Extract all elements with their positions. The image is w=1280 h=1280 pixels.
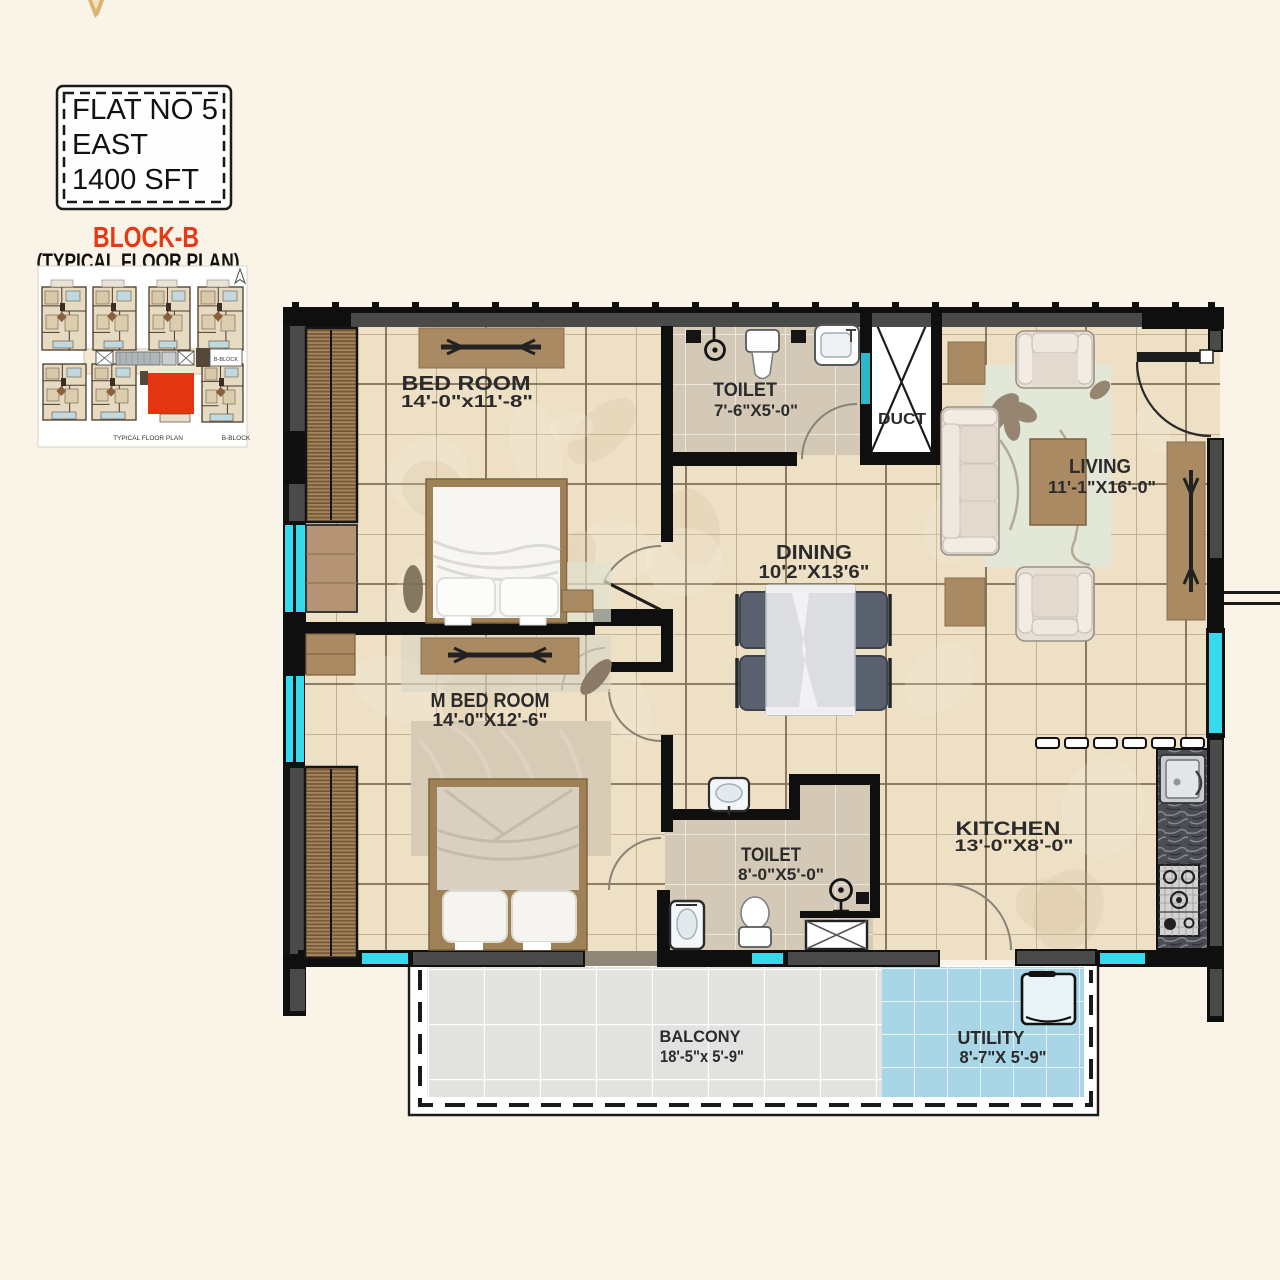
- svg-text:8'-7"X 5'-9": 8'-7"X 5'-9": [960, 1047, 1047, 1067]
- svg-text:11'-1"X16'-0": 11'-1"X16'-0": [1048, 477, 1156, 497]
- svg-text:1400 SFT: 1400 SFT: [72, 164, 199, 196]
- svg-text:10'2"X13'6": 10'2"X13'6": [759, 562, 870, 582]
- svg-text:BALCONY: BALCONY: [660, 1027, 742, 1046]
- svg-text:LIVING: LIVING: [1069, 456, 1131, 478]
- svg-text:14'-0"X12'-6": 14'-0"X12'-6": [433, 710, 548, 730]
- svg-text:EAST: EAST: [72, 129, 148, 161]
- svg-text:7'-6"X5'-0": 7'-6"X5'-0": [714, 402, 798, 420]
- svg-text:DINING: DINING: [776, 541, 852, 564]
- svg-text:TOILET: TOILET: [741, 844, 801, 866]
- svg-text:UTILITY: UTILITY: [958, 1028, 1025, 1048]
- svg-text:DUCT: DUCT: [878, 411, 926, 428]
- svg-text:TYPICAL FLOOR PLAN: TYPICAL FLOOR PLAN: [113, 435, 183, 442]
- svg-text:TOILET: TOILET: [713, 379, 777, 401]
- svg-text:M BED ROOM: M BED ROOM: [431, 689, 550, 712]
- svg-text:14'-0"x11'-8": 14'-0"x11'-8": [401, 391, 533, 411]
- svg-text:B-BLOCK: B-BLOCK: [214, 357, 238, 363]
- svg-text:FLAT NO 5: FLAT NO 5: [72, 94, 218, 126]
- svg-text:13'-0"X8'-0": 13'-0"X8'-0": [955, 837, 1074, 855]
- svg-text:8'-0"X5'-0": 8'-0"X5'-0": [738, 866, 824, 884]
- svg-text:B-BLOCK: B-BLOCK: [222, 435, 251, 442]
- svg-text:18'-5"x 5'-9": 18'-5"x 5'-9": [660, 1047, 744, 1066]
